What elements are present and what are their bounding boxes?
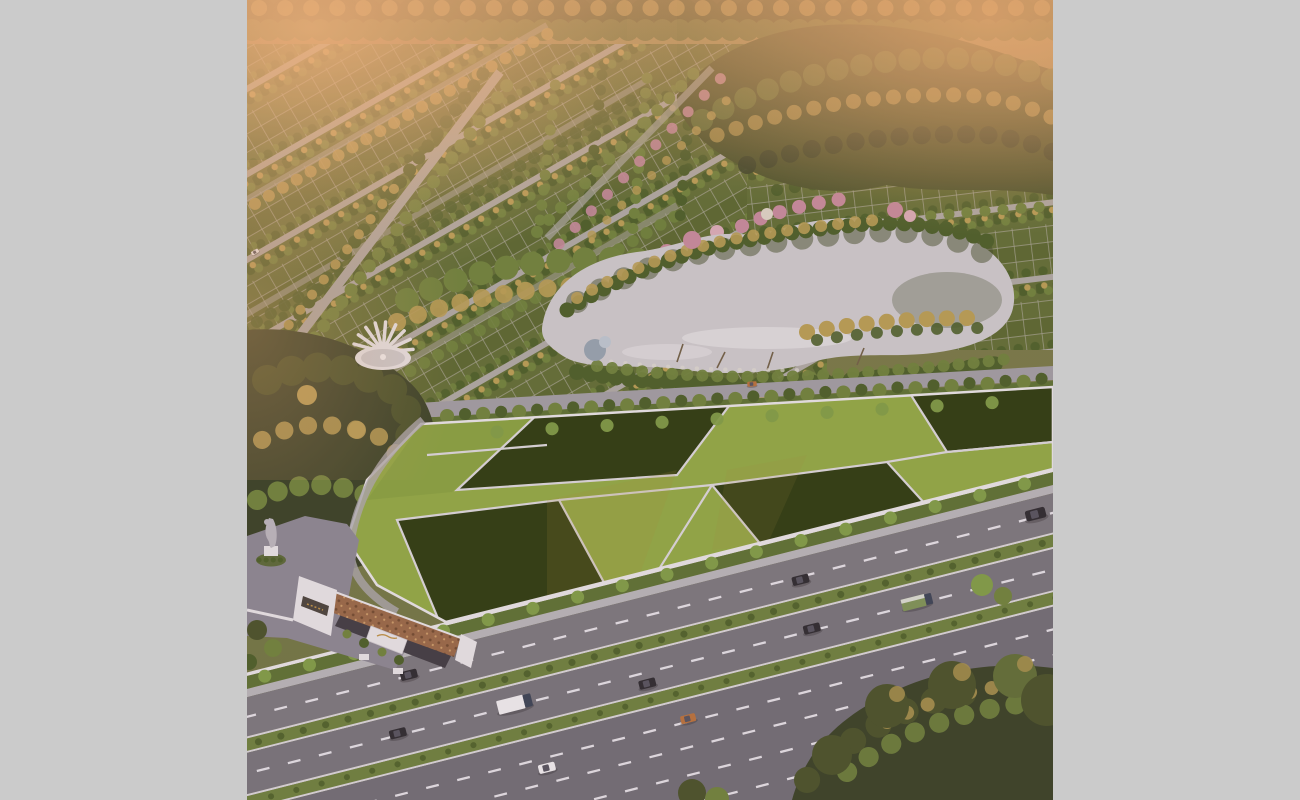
aerial-render-svg [247,0,1053,800]
aerial-render-image [247,0,1053,800]
letterbox-right [1053,0,1300,800]
atmosphere-overlay [247,0,1053,800]
screenshot-canvas [0,0,1300,800]
letterbox-left [0,0,247,800]
